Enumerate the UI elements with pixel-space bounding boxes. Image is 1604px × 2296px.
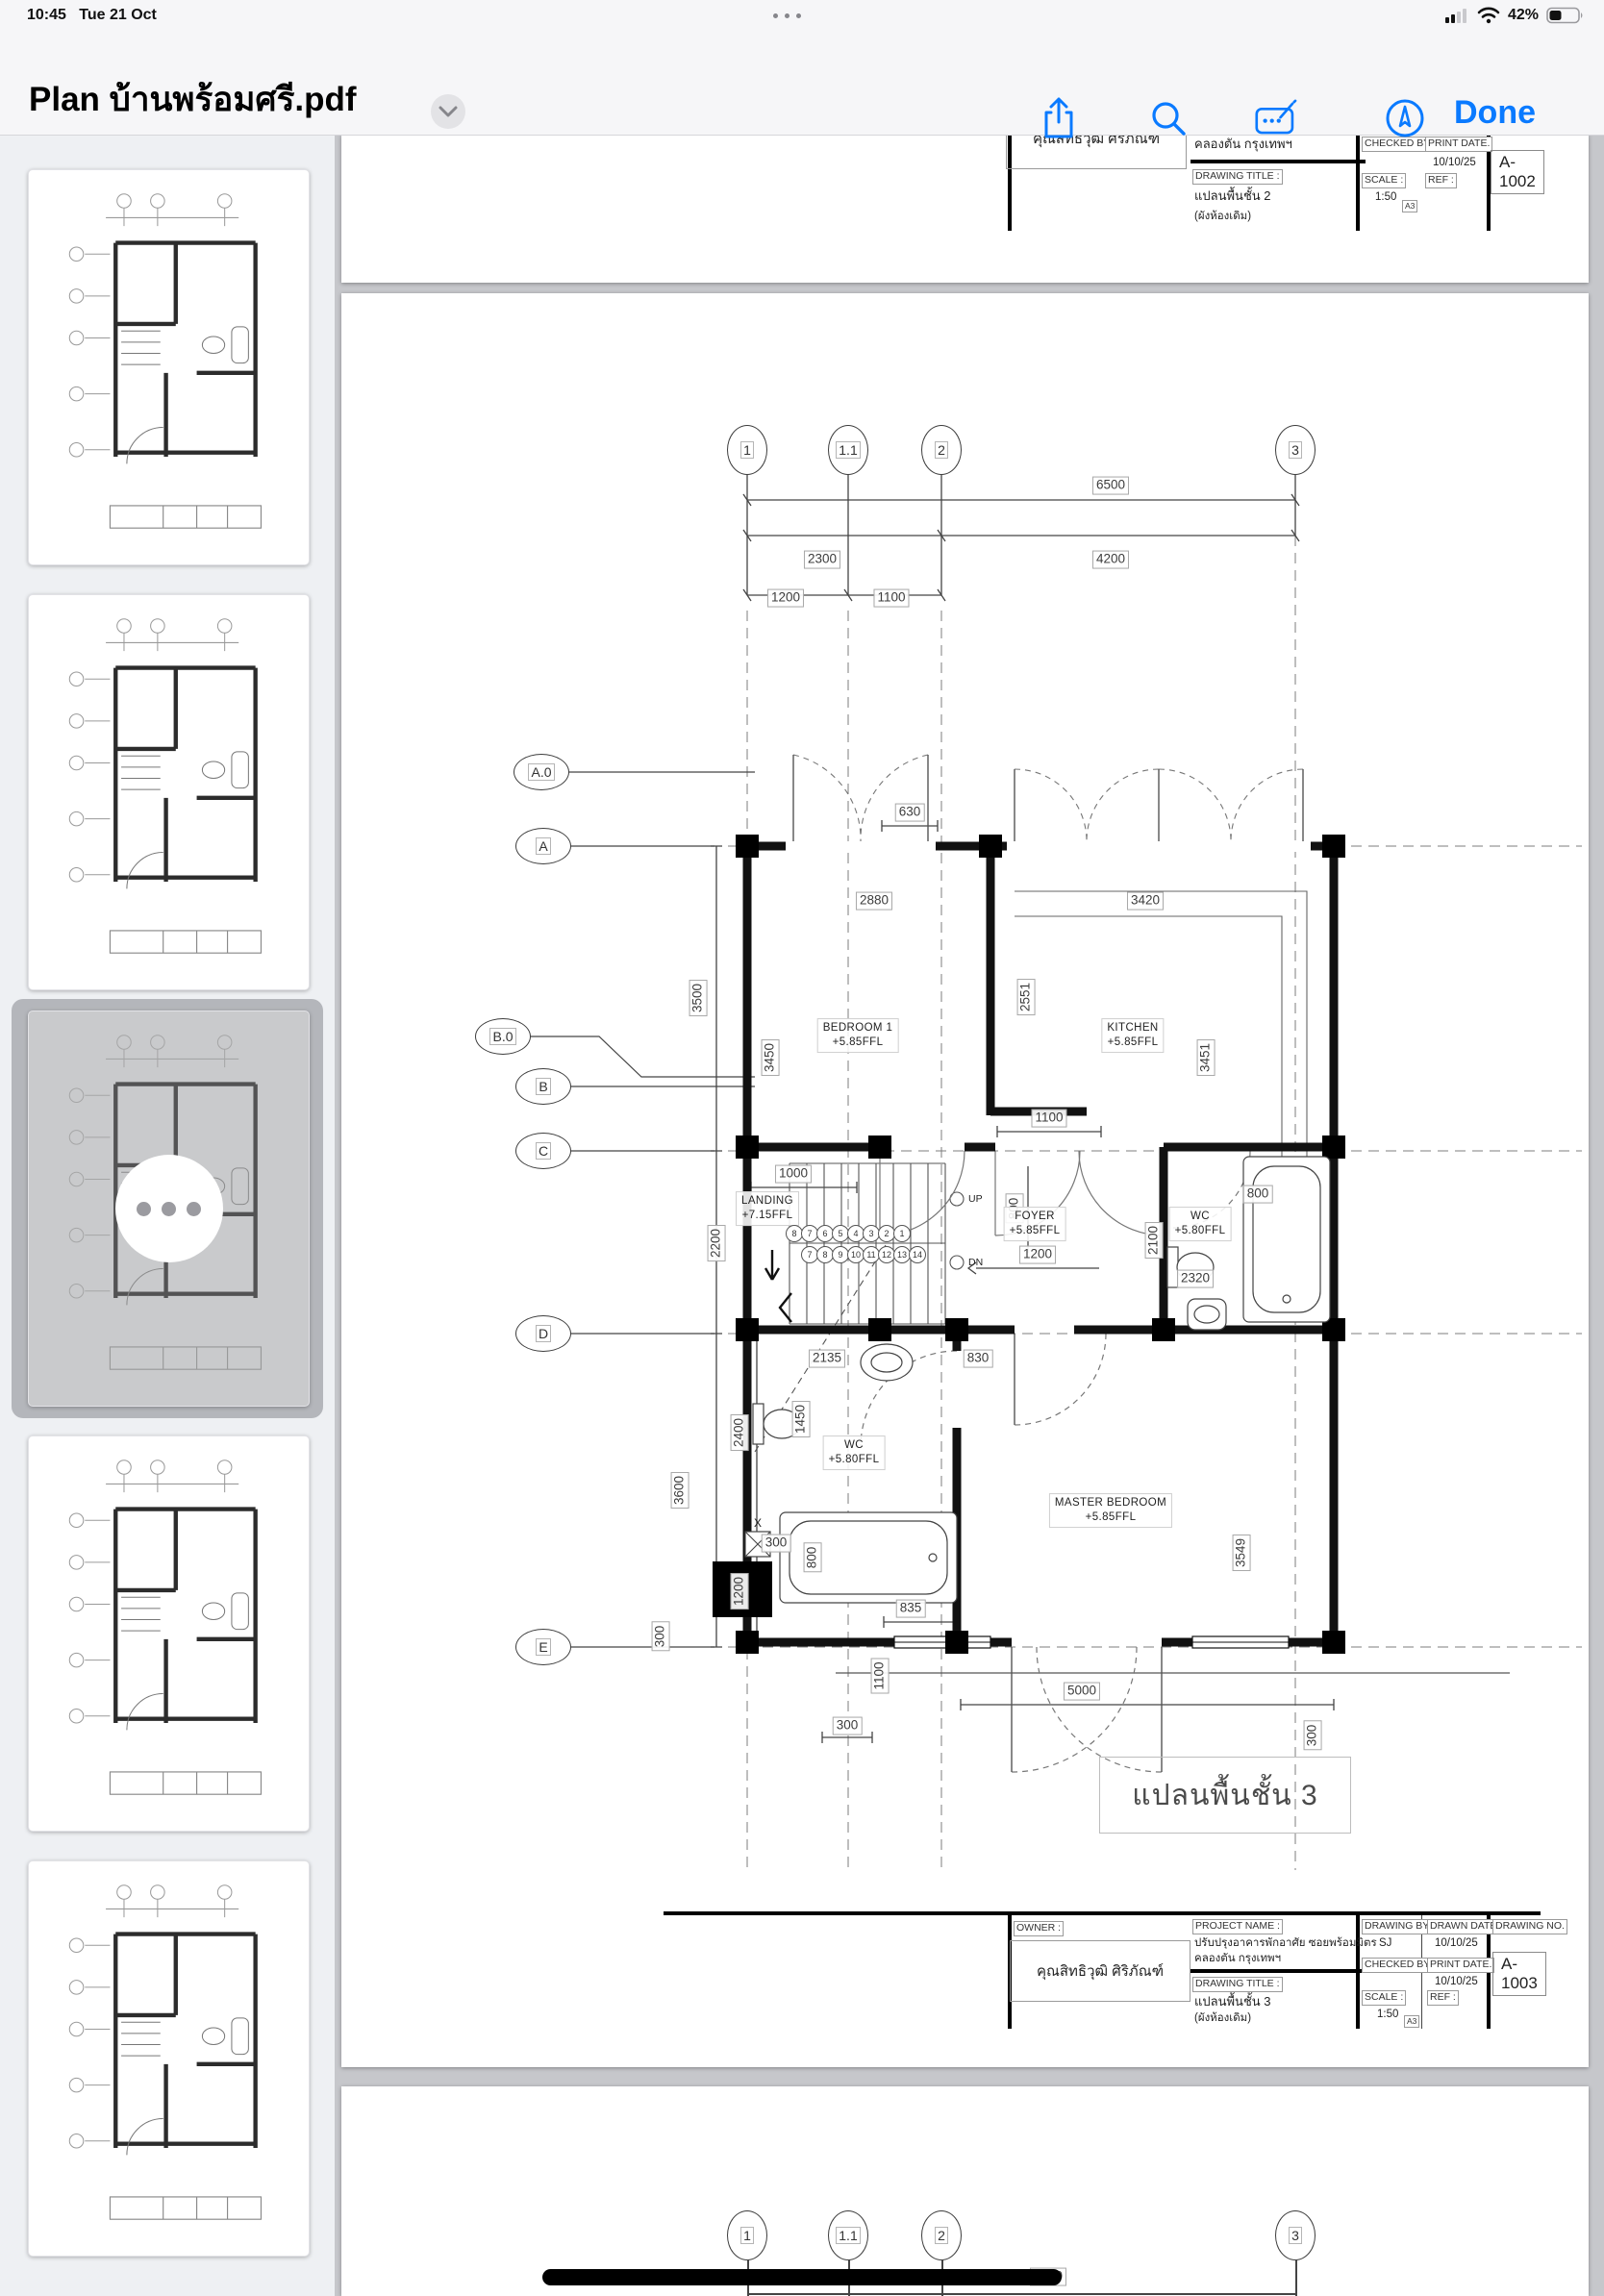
next-page-annotations: 11.1236500: [341, 2086, 1589, 2296]
stair-dn-label: DN: [968, 1257, 983, 1268]
grid-bubble-1: 1: [727, 425, 767, 475]
dim-label: 300: [1304, 1721, 1322, 1751]
grid-bubble-2: 2: [921, 2210, 962, 2260]
annotate-pen-button[interactable]: [1383, 96, 1427, 140]
drawn-date: 10/10/25: [1435, 1936, 1478, 1951]
drawn-date-label: DRAWN DATE.: [1427, 1919, 1502, 1934]
print-date-label: PRINT DATE.: [1427, 1958, 1494, 1973]
dim-label: 1000: [775, 1165, 812, 1184]
stair-up-label: UP: [968, 1193, 983, 1205]
drawing-title-label: DRAWING TITLE :: [1192, 1977, 1283, 1992]
markup-icon: [1255, 98, 1299, 138]
dim-label: 2100: [1145, 1222, 1164, 1259]
dim-label: 300: [652, 1622, 670, 1652]
markup-button[interactable]: [1255, 96, 1299, 140]
dim-label: 3420: [1127, 892, 1164, 911]
drawing-title-label: DRAWING TITLE :: [1192, 169, 1283, 185]
paper-size: A3: [1404, 2015, 1419, 2028]
ref-label: REF :: [1427, 1990, 1459, 2006]
dim-label: 3450: [762, 1039, 780, 1076]
scale-label: SCALE :: [1362, 1990, 1406, 2006]
dim-label: 2880: [856, 892, 892, 911]
dim-label: 1200: [1019, 1246, 1056, 1264]
room-label-wc: WC+5.80FFL: [823, 1435, 886, 1470]
pdf-page-3: X 11.123A.0AB.0BCDE650023004200120011006…: [341, 293, 1589, 2067]
clock: 10:45: [27, 7, 66, 23]
ref-label: REF :: [1425, 173, 1457, 188]
multitasking-dots-icon[interactable]: [773, 13, 801, 18]
share-icon: [1041, 97, 1076, 139]
dim-label: 2300: [804, 551, 840, 569]
dim-label: 3600: [671, 1472, 689, 1509]
pdf-viewer[interactable]: คุณสิทธิวุฒิ ศิริภัณฑ์ คลองตัน กรุงเทพฯ …: [335, 136, 1604, 2296]
room-label-landing: LANDING+7.15FFL: [736, 1191, 799, 1226]
page-thumbnail-1[interactable]: [28, 169, 310, 565]
drawing-title-sub: (ผังห้องเดิม): [1194, 2011, 1251, 2026]
pdf-page-4-top: 11.1236500: [341, 2086, 1589, 2296]
search-icon: [1149, 99, 1188, 137]
dim-label: 5000: [1064, 1683, 1100, 1701]
battery-icon: [1546, 6, 1585, 25]
done-button[interactable]: Done: [1454, 94, 1536, 132]
dim-label: 6500: [1092, 477, 1129, 495]
grid-bubble-C: C: [515, 1133, 571, 1169]
room-label-wc: WC+5.80FFL: [1169, 1207, 1232, 1241]
dim-label: 300: [833, 1717, 863, 1735]
print-date: 10/10/25: [1435, 1975, 1478, 1989]
print-date: 10/10/25: [1433, 156, 1476, 170]
page-thumbnail-3-selected[interactable]: [28, 1011, 310, 1407]
dim-label: 1200: [731, 1573, 749, 1610]
drawing-by: SJ: [1379, 1936, 1391, 1951]
grid-bubble-1.1: 1.1: [828, 2210, 868, 2260]
title-menu-button[interactable]: [431, 94, 465, 129]
pen-circle-icon: [1384, 97, 1426, 139]
ipad-screen: 10:45 Tue 21 Oct 42% Plan: [0, 0, 1604, 2296]
date: Tue 21 Oct: [79, 7, 157, 23]
print-date-label: PRINT DATE.: [1425, 137, 1492, 152]
owner-label: OWNER :: [1014, 1921, 1064, 1936]
dim-label: 800: [1243, 1185, 1273, 1204]
search-button[interactable]: [1146, 96, 1190, 140]
stair-number: 14: [909, 1246, 926, 1263]
status-time-date: 10:45 Tue 21 Oct: [27, 7, 157, 24]
dim-line: [747, 2293, 1295, 2295]
scale-label: SCALE :: [1362, 173, 1406, 188]
project-line1: ปรับปรุงอาคารพักอาศัย ซอยพร้อมมิตร: [1194, 1936, 1377, 1951]
room-label-master-bedroom: MASTER BEDROOM+5.85FFL: [1049, 1493, 1172, 1528]
pdf-toolbar: Plan บ้านพร้อมศรี.pdf: [0, 35, 1604, 136]
drawing-number: A-1003: [1492, 1952, 1546, 1996]
grid-bubble-A: A: [515, 828, 571, 864]
dim-label: 1200: [767, 589, 804, 608]
drawing-title: แปลนพื้นชั้น 2: [1194, 188, 1271, 205]
owner-name: คุณสิทธิวุฒิ ศิริภัณฑ์: [1010, 1940, 1190, 2002]
drawing-no-label: DRAWING NO.: [1492, 1919, 1567, 1934]
drawing-number: A-1002: [1491, 150, 1544, 194]
dim-label: 4200: [1092, 551, 1129, 569]
status-bar: 10:45 Tue 21 Oct 42%: [0, 0, 1604, 35]
dim-label: 835: [896, 1600, 926, 1618]
status-indicators: 42%: [1445, 6, 1585, 25]
pdf-page-2-bottom: คุณสิทธิวุฒิ ศิริภัณฑ์ คลองตัน กรุงเทพฯ …: [341, 135, 1589, 283]
dim-label: 2551: [1017, 979, 1036, 1015]
dim-label: 2200: [708, 1225, 726, 1261]
page-thumbnail-2[interactable]: [28, 594, 310, 990]
wifi-icon: [1477, 7, 1500, 24]
dim-label: 1100: [873, 589, 909, 608]
grid-bubble-A.0: A.0: [514, 754, 569, 790]
dim-label: 1100: [1031, 1110, 1066, 1128]
scale-value: 1:50: [1377, 2008, 1398, 2022]
grid-bubble-D: D: [515, 1315, 571, 1352]
dim-label: 2135: [809, 1350, 845, 1368]
grid-bubble-3: 3: [1275, 425, 1316, 475]
dim-label: 2320: [1177, 1270, 1214, 1288]
title-block-page2: คุณสิทธิวุฒิ ศิริภัณฑ์ คลองตัน กรุงเทพฯ …: [664, 135, 1541, 283]
page-thumbnail-5[interactable]: [28, 1860, 310, 2257]
grid-bubble-1: 1: [727, 2210, 767, 2260]
document-title: Plan บ้านพร้อมศรี.pdf: [29, 73, 357, 126]
dim-label: 830: [964, 1350, 993, 1368]
room-label-foyer: FOYER+5.85FFL: [1004, 1207, 1066, 1241]
drawing-title-sub: (ผังห้องเดิม): [1194, 210, 1251, 224]
title-block-page3: OWNER : คุณสิทธิวุฒิ ศิริภัณฑ์ PROJECT N…: [664, 1911, 1541, 2029]
grid-bubble-B: B: [515, 1068, 571, 1105]
dim-label: 800: [804, 1543, 822, 1573]
chevron-down-icon: [439, 106, 458, 117]
grid-bubble-1.1: 1.1: [828, 425, 868, 475]
project-name-label: PROJECT NAME :: [1192, 1919, 1283, 1934]
elevation-ground-bar: [542, 2269, 1062, 2285]
plan-title-box: แปลนพื้นชั้น 3: [1099, 1757, 1351, 1834]
thumbnail-sidebar[interactable]: [0, 136, 335, 2296]
loading-spinner: [115, 1155, 223, 1262]
grid-bubble-2: 2: [921, 425, 962, 475]
grid-bubble-E: E: [515, 1629, 571, 1665]
drawing-title: แปลนพื้นชั้น 3: [1194, 1994, 1271, 2010]
dim-label: 3500: [689, 980, 708, 1016]
dim-label: 1100: [871, 1658, 890, 1693]
stair-number: 1: [893, 1225, 911, 1242]
dim-label: 1450: [792, 1401, 811, 1437]
page-thumbnail-4[interactable]: [28, 1435, 310, 1832]
dim-label: 3451: [1197, 1039, 1216, 1076]
plan-annotations: 11.123A.0AB.0BCDE65002300420012001100630…: [341, 293, 1589, 2067]
share-button[interactable]: [1037, 96, 1081, 140]
battery-percent: 42%: [1508, 7, 1539, 24]
room-label-kitchen: KITCHEN+5.85FFL: [1101, 1018, 1164, 1053]
dim-label: 300: [762, 1535, 791, 1553]
dim-label: 3549: [1233, 1535, 1251, 1571]
dim-label: 630: [895, 804, 925, 822]
scale-value: 1:50: [1375, 190, 1396, 205]
grid-bubble-B.0: B.0: [475, 1018, 531, 1055]
dim-label: 2400: [731, 1414, 749, 1451]
grid-bubble-3: 3: [1275, 2210, 1316, 2260]
cellular-signal-icon: [1445, 7, 1469, 24]
room-label-bedroom-1: BEDROOM 1+5.85FFL: [817, 1018, 899, 1053]
project-line2: คลองตัน กรุงเทพฯ: [1194, 1952, 1281, 1966]
paper-size: A3: [1402, 200, 1417, 212]
